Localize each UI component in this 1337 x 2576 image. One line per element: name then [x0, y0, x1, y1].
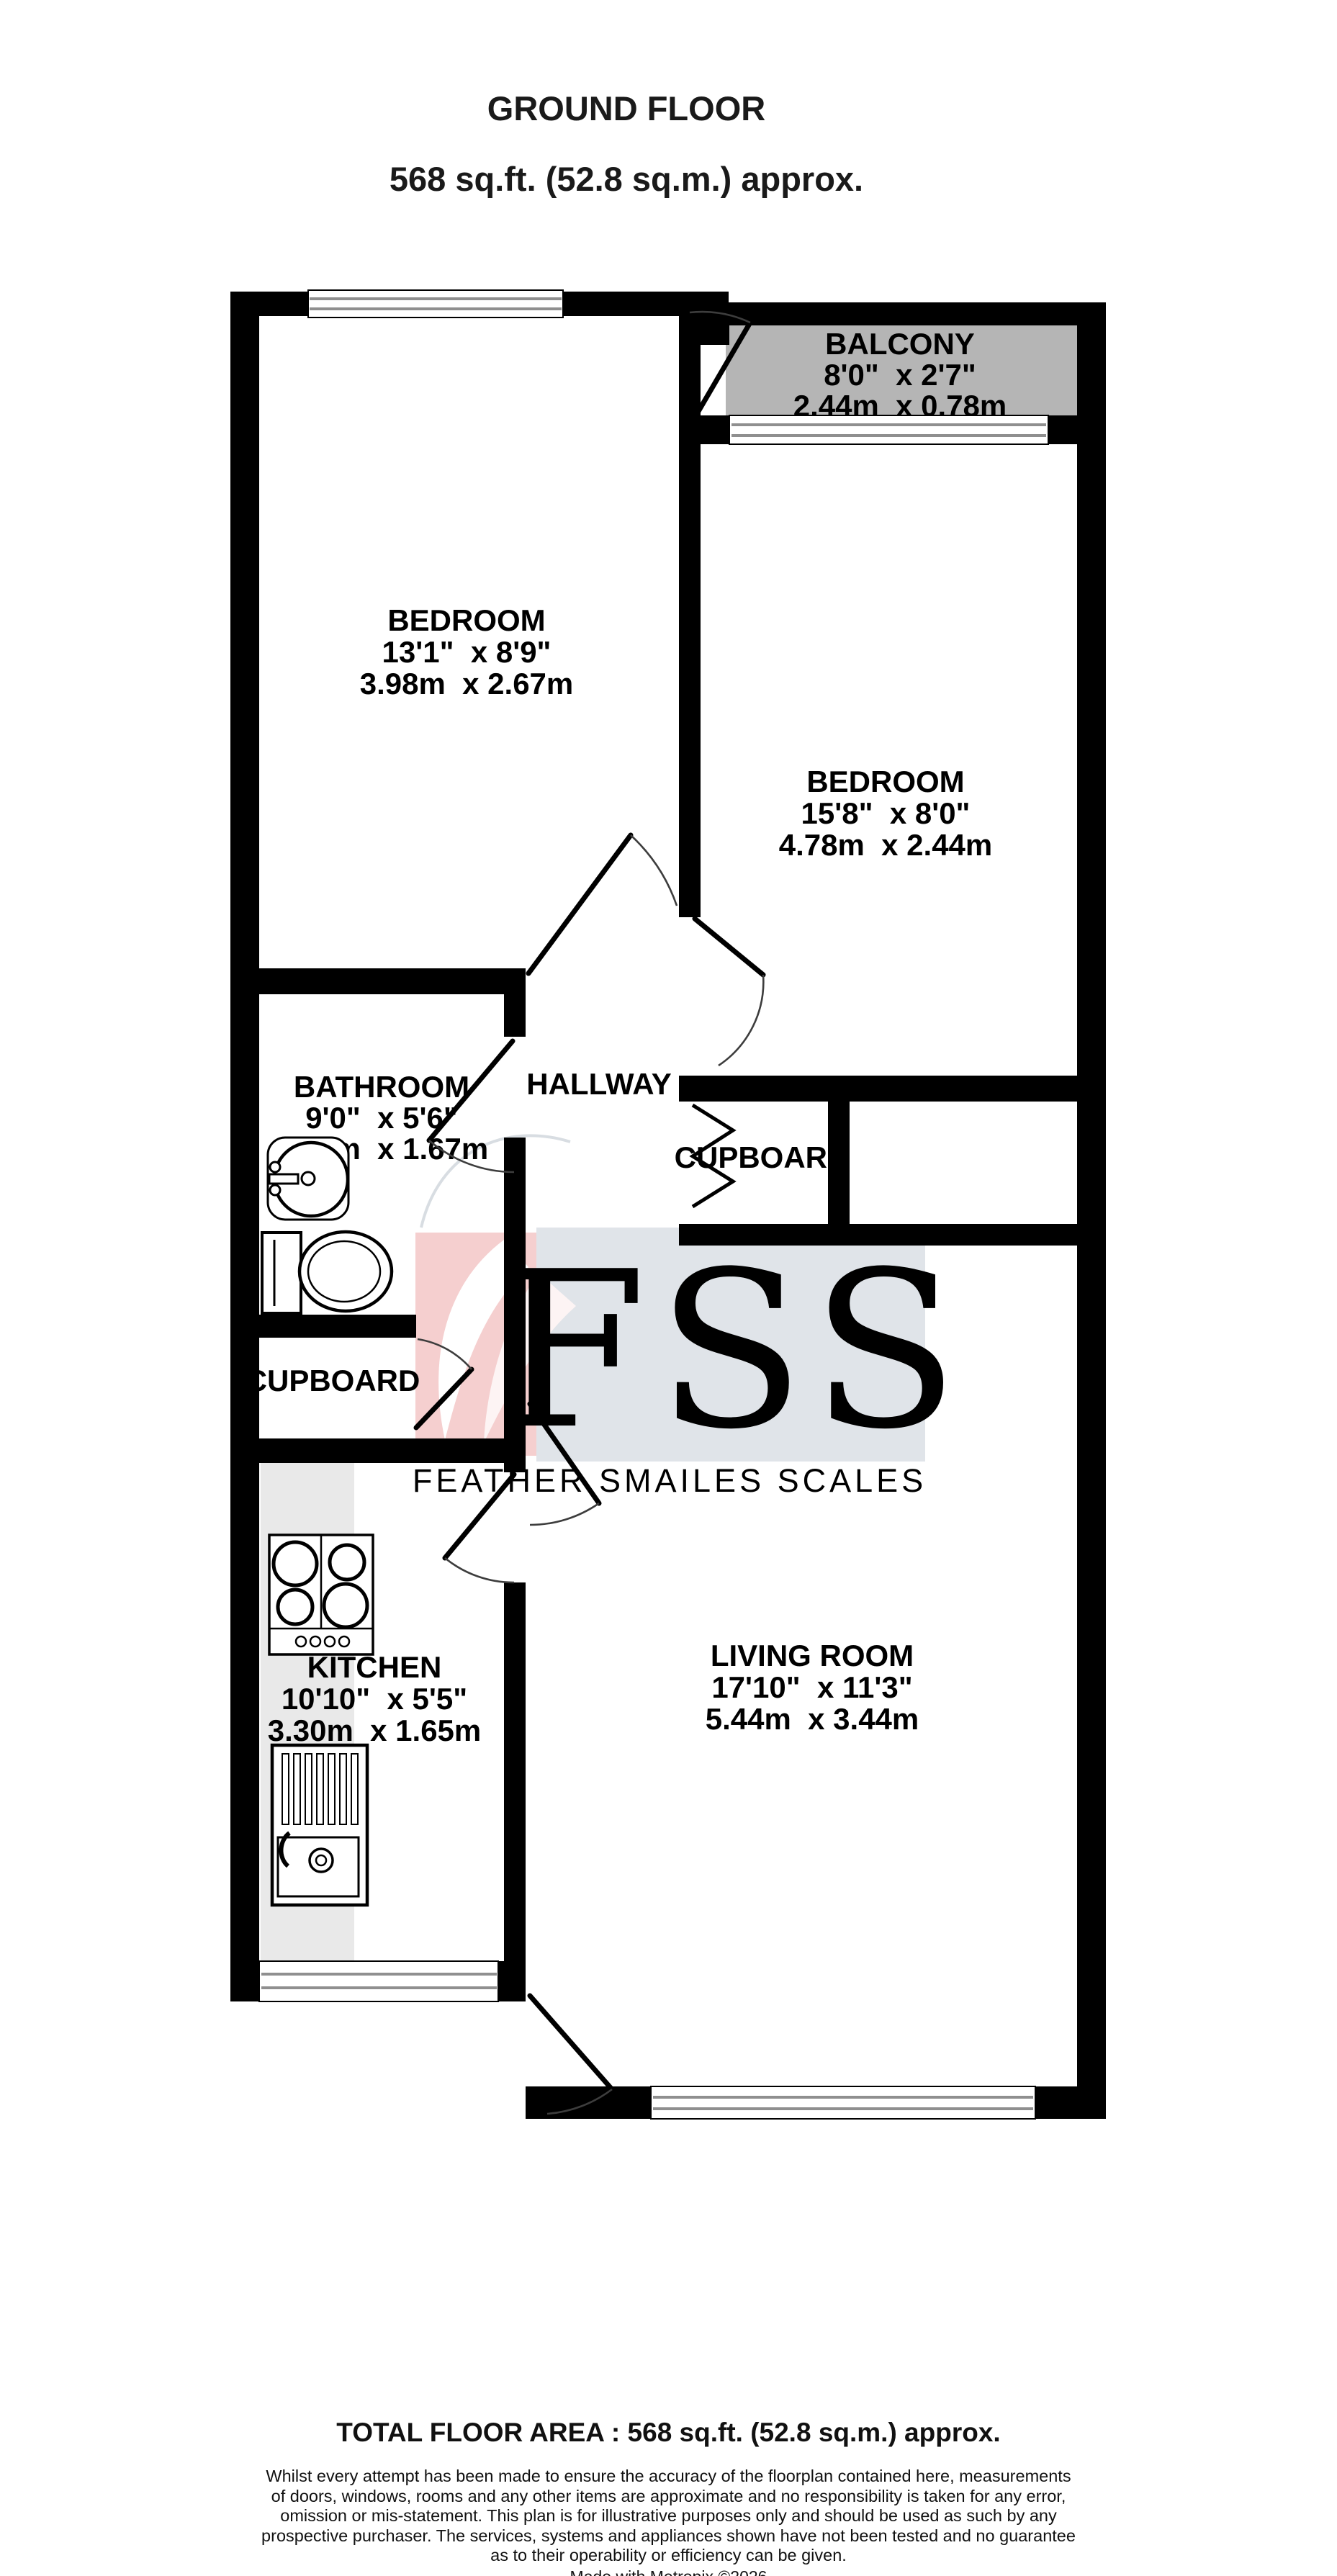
floorplan-page: GROUND FLOOR 568 sq.ft. (52.8 sq.m.) app… [0, 0, 1337, 2576]
hob-knob [296, 1636, 306, 1647]
bedroom-2-door [695, 919, 763, 1066]
room-label-balcony-name: BALCONY [825, 327, 975, 361]
window-end-block [679, 415, 729, 444]
door-arc [445, 1558, 514, 1582]
room-label-bedroom-2-name: BEDROOM [806, 765, 964, 798]
wall-living-room-top [679, 1224, 1106, 1246]
window-pane [651, 2086, 1035, 2119]
wall-hall-divider-a [504, 968, 526, 1037]
toilet-bowl-inner [308, 1241, 380, 1302]
room-label-bedroom-1-imperial: 13'1" x 8'9" [382, 635, 552, 669]
room-label-bathroom-imperial: 9'0" x 5'6" [305, 1101, 458, 1135]
hob-knob [310, 1636, 320, 1647]
disclaimer-line: prospective purchaser. The services, sys… [0, 2526, 1337, 2546]
hob-burner [278, 1590, 312, 1624]
wall-right-outer [1077, 302, 1106, 2119]
basin-plug [302, 1172, 315, 1185]
basin-tap-knob [270, 1162, 280, 1172]
room-label-living-room-metric: 5.44m x 3.44m [706, 1702, 919, 1736]
window-end-block [498, 1961, 526, 2001]
footer: TOTAL FLOOR AREA : 568 sq.ft. (52.8 sq.m… [0, 2418, 1337, 2576]
window-kitchen [259, 1961, 526, 2001]
window-bedroom-1 [308, 290, 563, 318]
room-label-living-room-imperial: 17'10" x 11'3" [711, 1670, 912, 1704]
sink-drainer-groove [340, 1754, 346, 1824]
wall-hall-divider-b [504, 1138, 526, 1315]
door-arc [530, 1503, 599, 1525]
door-leaf [528, 835, 631, 973]
bedroom-1-door [528, 835, 677, 973]
bathroom-basin [268, 1138, 348, 1220]
wall-bedroom-divider [679, 316, 701, 917]
floor-plan-svg: FSS FEATHER SMAILES SCALES BALCONY 8'0" … [0, 0, 1337, 2576]
wall-kitchen-top [230, 1438, 526, 1463]
hob-burner [324, 1584, 367, 1627]
room-label-bedroom-2-metric: 4.78m x 2.44m [779, 828, 993, 862]
sink-drain-inner [316, 1855, 326, 1865]
basin-tap-knob [270, 1185, 280, 1195]
door-arc [631, 835, 677, 906]
total-floor-area: TOTAL FLOOR AREA : 568 sq.ft. (52.8 sq.m… [0, 2418, 1337, 2448]
room-label-cupboard: CUPBOARD [675, 1140, 850, 1174]
sink-drainer-groove [305, 1754, 312, 1824]
disclaimer-line: omission or mis-statement. This plan is … [0, 2506, 1337, 2526]
window-balcony-bedroom-2 [679, 415, 1077, 444]
toilet-cistern [262, 1233, 301, 1313]
window-end-block [1035, 2086, 1106, 2119]
room-label-living-room-name: LIVING ROOM [711, 1639, 914, 1672]
wall-kitchen-divider [504, 1582, 526, 1961]
watermark-initials: FSS [497, 1225, 969, 1477]
watermark-tagline: FEATHER SMAILES SCALES [413, 1462, 927, 1499]
kitchen-hob [269, 1535, 373, 1654]
room-label-hallway: HALLWAY [526, 1067, 671, 1101]
hob-knob [325, 1636, 335, 1647]
room-label-kitchen-metric: 3.30m x 1.65m [268, 1713, 482, 1747]
wall-top-balcony [729, 302, 1106, 325]
door-leaf [695, 919, 763, 975]
wall-bathroom-top [230, 968, 526, 994]
room-label-cupboard-2: CUPBOARD [246, 1364, 420, 1397]
disclaimer-line: Whilst every attempt has been made to en… [0, 2467, 1337, 2487]
basin-tap [269, 1174, 298, 1184]
kitchen-sink [272, 1745, 367, 1905]
metropix-credit: Made with Metropix ©2026 [0, 2566, 1337, 2576]
window-pane [308, 290, 563, 318]
wall-bathroom-bottom [230, 1315, 416, 1338]
room-label-bedroom-2-imperial: 15'8" x 8'0" [801, 796, 971, 830]
room-label-bathroom-name: BATHROOM [294, 1070, 469, 1104]
window-pane [259, 1961, 498, 2001]
room-label-bedroom-1-name: BEDROOM [387, 603, 545, 637]
sink-drainer-groove [351, 1754, 358, 1824]
wall-cupboard-right [828, 1076, 850, 1246]
doors [416, 312, 763, 2114]
hob-burner [330, 1545, 364, 1580]
wall-cupboard-top [679, 1076, 850, 1102]
sink-drainer-groove [282, 1754, 289, 1824]
sink-drainer-groove [317, 1754, 323, 1824]
wall-left-outer [230, 292, 259, 2001]
disclaimer-line: of doors, windows, rooms and any other i… [0, 2487, 1337, 2507]
room-label-bedroom-1-metric: 3.98m x 2.67m [360, 667, 574, 701]
hob-burner [274, 1542, 317, 1585]
wall-bedroom-2-bottom [850, 1076, 1077, 1102]
window-pane [729, 415, 1048, 444]
room-label-balcony-imperial: 8'0" x 2'7" [824, 358, 976, 392]
door-leaf [530, 1996, 612, 2089]
sink-drainer-groove [328, 1754, 335, 1824]
room-label-kitchen-imperial: 10'10" x 5'5" [282, 1682, 467, 1716]
window-end-block [1048, 415, 1077, 444]
door-arc [719, 975, 763, 1066]
disclaimer-line: as to their operability or efficiency ca… [0, 2546, 1337, 2566]
hob-knob [339, 1636, 349, 1647]
toilet [262, 1232, 392, 1313]
sink-drainer-groove [294, 1754, 300, 1824]
